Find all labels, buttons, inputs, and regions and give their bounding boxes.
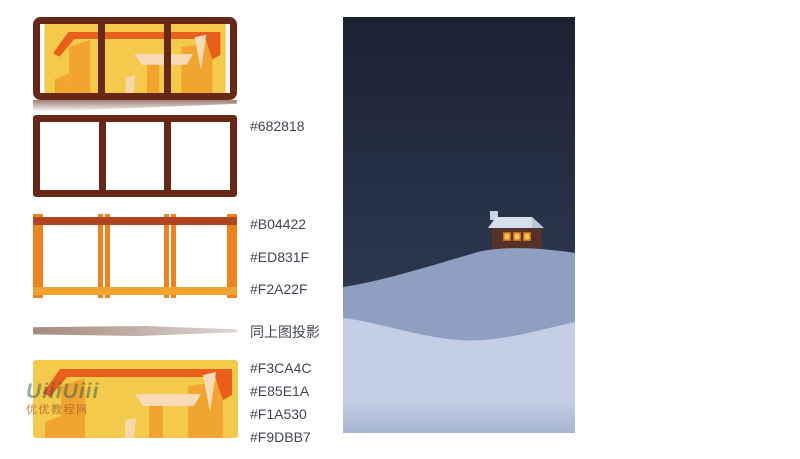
post-mid-2a — [164, 214, 169, 298]
lit-window — [505, 234, 510, 240]
house-lit-windows — [503, 232, 531, 241]
post-right — [227, 214, 237, 298]
swatch-label-bottom-bar-color: #F2A22F — [250, 281, 308, 297]
swatch-label-frame-color: #682818 — [250, 118, 305, 134]
swatch-label-post-color: #ED831F — [250, 249, 309, 265]
window-drop-shadow — [33, 100, 237, 112]
swatch-label-scene-bg-color: #F3CA4C — [250, 360, 311, 376]
tutorial-sheet: UiiiUiii 优优教程网 #682818 #B04422 #ED831F #… — [0, 0, 800, 459]
bottom-bar — [33, 287, 237, 295]
lit-window — [515, 234, 520, 240]
room-scene-illustration — [33, 360, 238, 438]
swatch-label-scene-red-color: #E85E1A — [250, 383, 309, 399]
swatch-label-scene-beige-color: #F9DBB7 — [250, 429, 311, 445]
post-left — [33, 214, 43, 298]
empty-window-frame — [33, 115, 237, 197]
swatch-label-scene-orange-color: #F1A530 — [250, 406, 307, 422]
room-scene-art — [33, 360, 238, 438]
window-mullion-left — [98, 24, 105, 93]
frame-pane — [171, 122, 230, 190]
night-snow-scene — [343, 17, 575, 433]
post-mid-2b — [171, 214, 176, 298]
room-scene-art — [44, 24, 225, 93]
swatch-label-top-bar-color: #B04422 — [250, 216, 306, 232]
shadow-note-label: 同上图投影 — [250, 324, 320, 340]
post-mid-1b — [105, 214, 110, 298]
top-bar — [33, 217, 237, 225]
lit-window — [525, 234, 530, 240]
finished-window-illustration — [33, 17, 237, 100]
frame-pane — [40, 122, 99, 190]
projection-shadow-sample — [33, 326, 237, 336]
frame-structure-diagram — [33, 214, 237, 298]
window-mullion-right — [164, 24, 171, 93]
frame-pane — [106, 122, 165, 190]
post-mid-1a — [98, 214, 103, 298]
